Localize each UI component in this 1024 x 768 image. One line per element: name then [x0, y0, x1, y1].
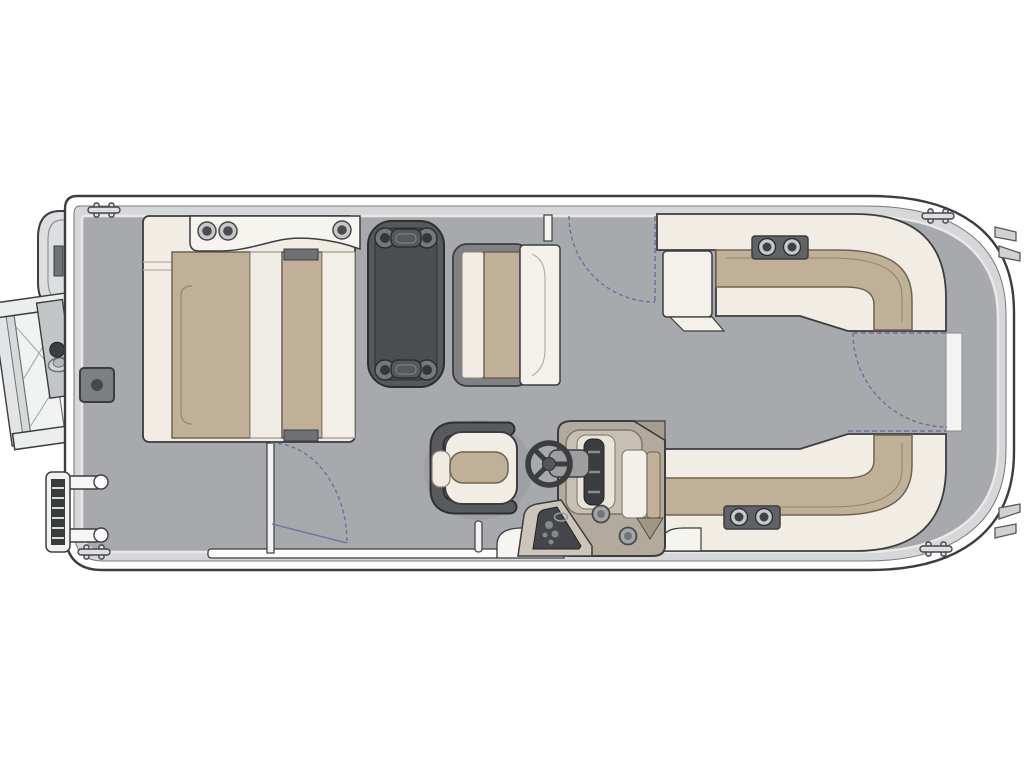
wheel-hub [543, 458, 556, 471]
rail-post [475, 521, 482, 552]
pontoon-floorplan [0, 0, 1024, 768]
seat-cushion [282, 252, 322, 438]
seat-hinge [284, 249, 318, 260]
stern-gate-fence-strip [946, 333, 962, 431]
gate-post [544, 215, 552, 241]
flush-cup-holder-inner [624, 532, 632, 540]
gate-post [267, 443, 274, 553]
deck-hatch [80, 368, 114, 402]
lounge-corner-cap [663, 528, 701, 551]
switch [549, 540, 554, 545]
captains-chair [432, 429, 517, 507]
dinette-bench [453, 244, 560, 386]
switch [543, 533, 548, 538]
seat-back-panel [322, 252, 355, 438]
ladder-tube-cap [94, 528, 108, 542]
bench-cushion [484, 252, 520, 378]
flush-cup-holder-inner [597, 510, 605, 518]
pedestal-table [368, 221, 444, 387]
chair-headrest [432, 451, 450, 487]
ladder-tube-cap [94, 475, 108, 489]
seat-divider [250, 252, 282, 438]
chair-cushion [450, 452, 508, 483]
hatch-latch [91, 379, 103, 391]
nose-pad [54, 246, 63, 276]
switch [552, 531, 559, 538]
chaise-cushion [172, 252, 250, 438]
side-rail [208, 549, 498, 558]
lounge-end-armrest [663, 251, 712, 317]
top-right-lounge [657, 214, 946, 331]
bench-backrest [520, 245, 560, 385]
switch [545, 521, 553, 529]
console-seat-trim [647, 452, 660, 518]
bench-front-trim [462, 252, 484, 378]
page [0, 0, 1024, 768]
console-seat-pad [622, 450, 647, 518]
bottom-right-lounge [663, 434, 946, 551]
table-top [375, 228, 437, 380]
seat-hinge [284, 430, 318, 441]
left-lounge [143, 216, 360, 442]
